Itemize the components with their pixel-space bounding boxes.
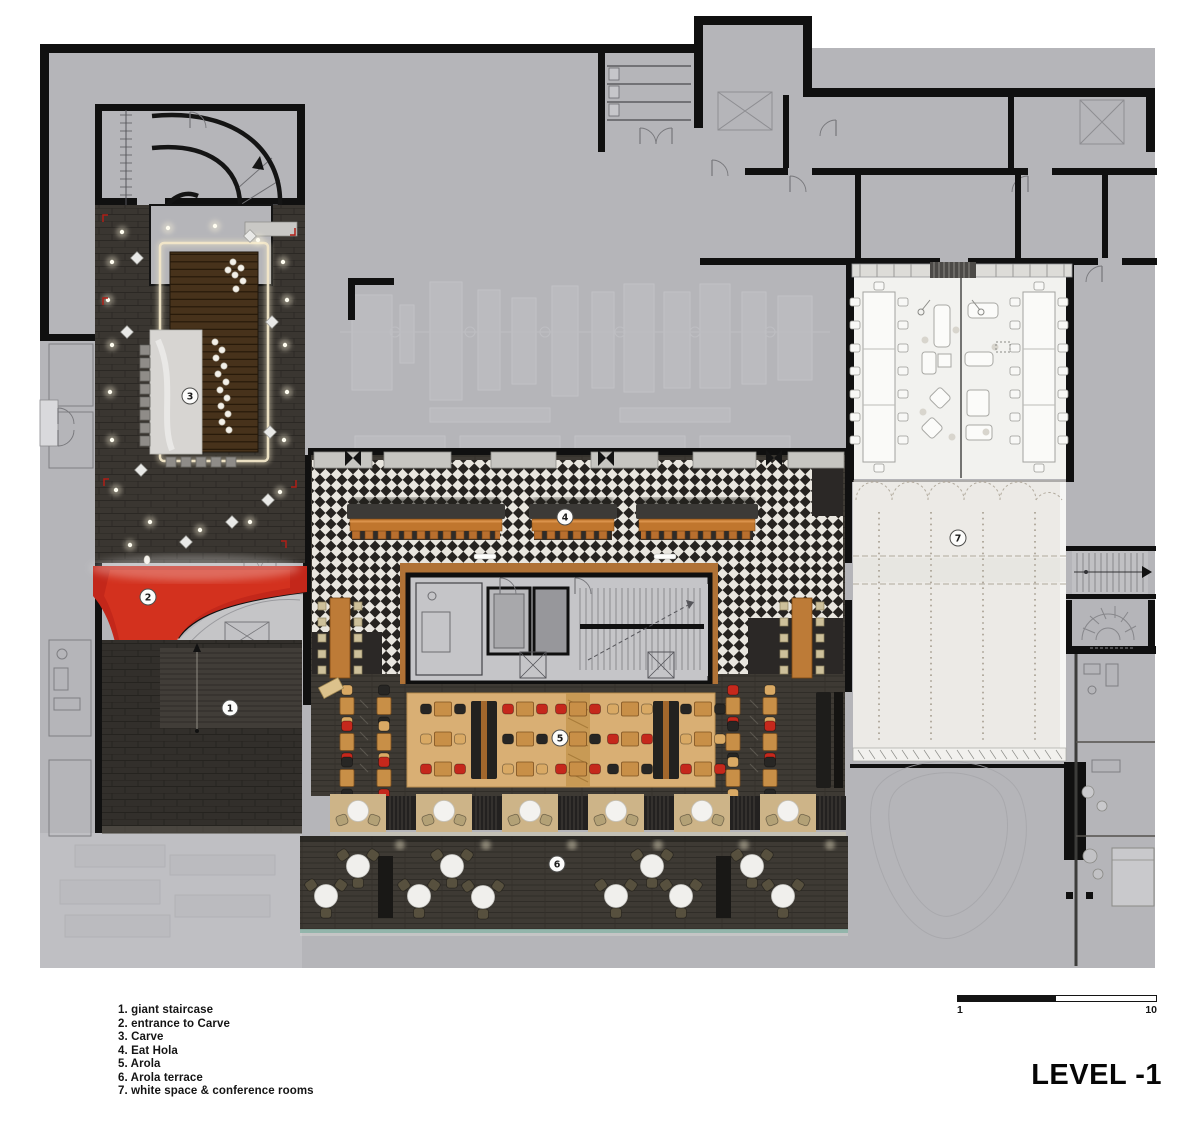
- arola-dining: [311, 678, 845, 799]
- legend: 1. giant staircase 2. entrance to Carve …: [118, 1004, 314, 1099]
- svg-text:1: 1: [227, 703, 234, 714]
- planter: [716, 856, 731, 918]
- legend-item-5: 5. Arola: [118, 1058, 314, 1072]
- terrace-edge: [300, 929, 848, 933]
- marker-7: 7: [950, 530, 966, 546]
- legend-item-4: 4. Eat Hola: [118, 1045, 314, 1059]
- scale-start-label: 1: [957, 1004, 963, 1016]
- building-core: [400, 563, 718, 693]
- legend-item-7: 7. white space & conference rooms: [118, 1085, 314, 1099]
- marker-3: 3: [182, 388, 198, 404]
- bar-counter: [636, 498, 758, 540]
- bar-counters: [347, 498, 758, 540]
- legend-item-1: 1. giant staircase: [118, 1004, 314, 1018]
- svg-text:7: 7: [955, 533, 962, 544]
- core-stair: [576, 584, 708, 676]
- whitespace-hatch-band: [853, 748, 1066, 761]
- scale-end-label: 10: [1145, 1004, 1157, 1016]
- svg-text:6: 6: [554, 859, 561, 870]
- marker-5: 5: [552, 730, 568, 746]
- window-bays: [330, 794, 846, 836]
- floor-plan-drawing: 1 2 3 4 5 6 7: [0, 0, 1200, 1129]
- marker-1: 1: [222, 700, 238, 716]
- level-title: LEVEL -1: [1031, 1059, 1162, 1092]
- communal-table-left: [318, 598, 362, 678]
- planter: [378, 856, 393, 918]
- conference-rooms: [850, 262, 1072, 479]
- communal-table-right: [780, 598, 824, 678]
- legend-item-3: 3. Carve: [118, 1031, 314, 1045]
- legend-item-2: 2. entrance to Carve: [118, 1018, 314, 1032]
- bar-counter: [347, 498, 505, 540]
- scale-bar-fill: [958, 996, 1056, 1001]
- arola-terrace: [300, 836, 848, 936]
- marker-6: 6: [549, 856, 565, 872]
- scale-bar: 1 10: [957, 995, 1157, 1016]
- carve-room: [95, 205, 305, 578]
- legend-item-6: 6. Arola terrace: [118, 1072, 314, 1086]
- scale-bar-graphic: [957, 995, 1157, 1002]
- floor-plan-sheet: 1 2 3 4 5 6 7 1. giant staircase 2. entr…: [0, 0, 1200, 1129]
- giant-staircase: [102, 640, 302, 834]
- svg-text:5: 5: [557, 733, 564, 744]
- svg-text:3: 3: [187, 391, 194, 402]
- svg-text:4: 4: [562, 512, 569, 523]
- svg-text:2: 2: [145, 592, 152, 603]
- marker-2: 2: [140, 589, 156, 605]
- marker-4: 4: [557, 509, 573, 525]
